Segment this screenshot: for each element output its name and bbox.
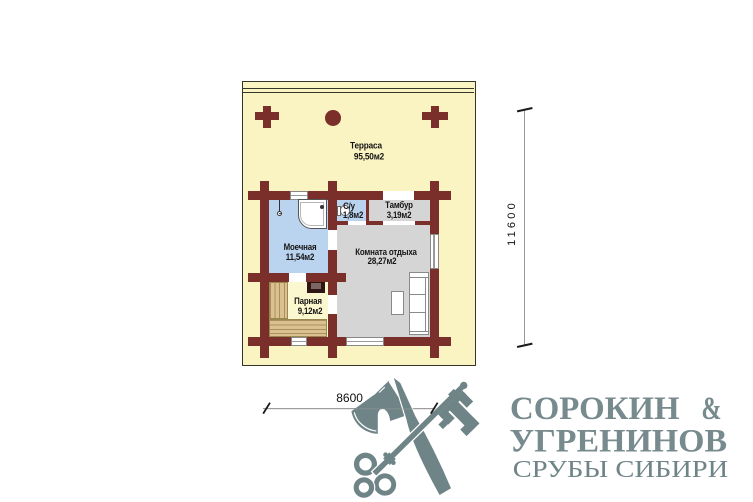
svg-text:СОРОКИН: СОРОКИН: [510, 391, 680, 427]
svg-text:УГРЕНИНОВ: УГРЕНИНОВ: [509, 423, 727, 459]
svg-text:СРУБЫ СИБИРИ: СРУБЫ СИБИРИ: [513, 456, 728, 483]
svg-text:&: &: [701, 391, 721, 427]
